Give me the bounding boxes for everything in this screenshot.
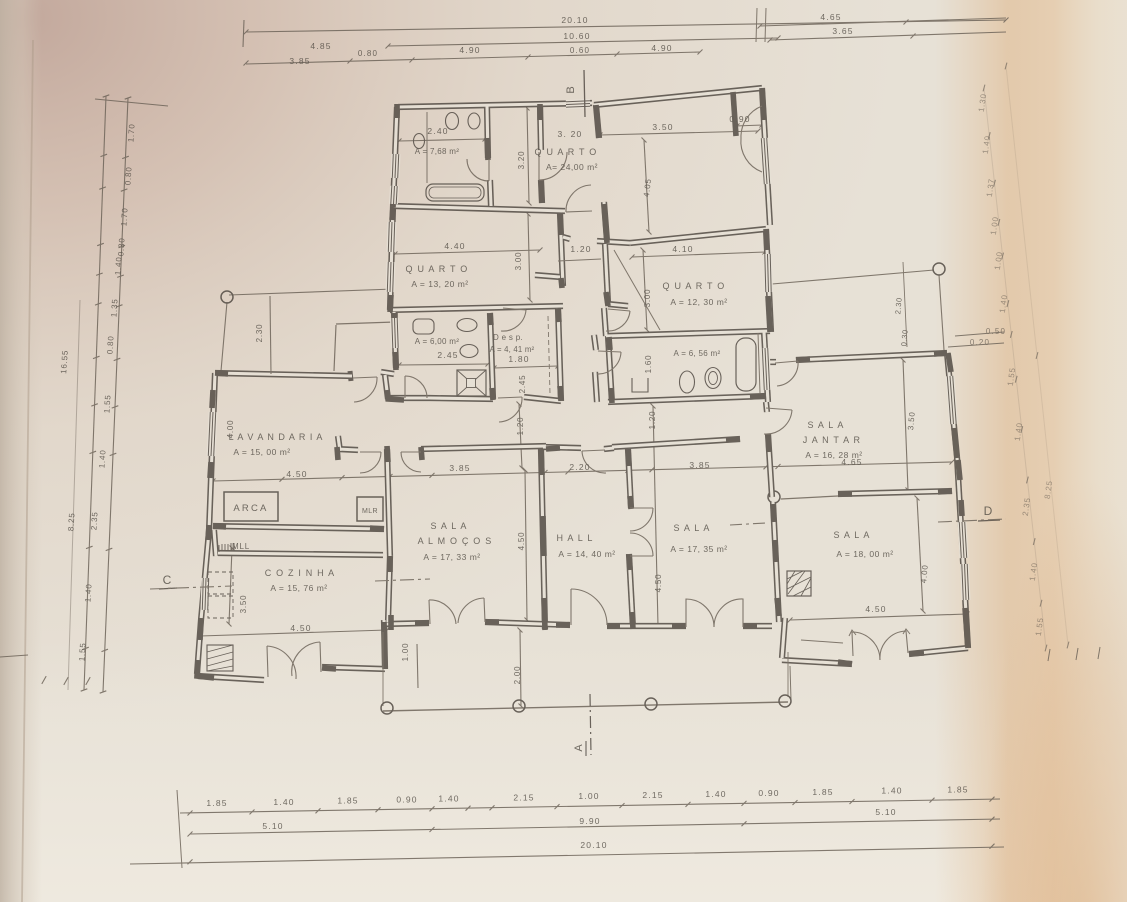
svg-text:3.65: 3.65 <box>832 26 853 36</box>
svg-text:3.85: 3.85 <box>289 56 310 66</box>
svg-text:1.40: 1.40 <box>113 256 123 275</box>
svg-text:1.70: 1.70 <box>126 123 136 142</box>
svg-text:2.00: 2.00 <box>513 666 522 685</box>
svg-text:A = 7,68 m²: A = 7,68 m² <box>415 147 459 156</box>
svg-text:A = 6,00 m²: A = 6,00 m² <box>415 337 459 346</box>
svg-text:MLR: MLR <box>362 508 378 515</box>
svg-text:1.00: 1.00 <box>401 643 410 662</box>
svg-text:0.80: 0.80 <box>123 166 133 185</box>
svg-text:A = 17, 35 m²: A = 17, 35 m² <box>670 544 727 554</box>
svg-text:S A L A: S A L A <box>833 530 870 540</box>
svg-text:2.15: 2.15 <box>513 792 534 802</box>
svg-text:1.70: 1.70 <box>119 207 129 226</box>
svg-text:2.45: 2.45 <box>437 350 458 360</box>
svg-text:4.50: 4.50 <box>654 574 663 593</box>
svg-text:S A L A: S A L A <box>673 523 710 533</box>
svg-text:3.50: 3.50 <box>906 411 917 430</box>
svg-text:4.00: 4.00 <box>226 420 235 439</box>
svg-text:A = 14, 40 m²: A = 14, 40 m² <box>558 549 615 559</box>
svg-text:S A L A: S A L A <box>807 420 844 430</box>
svg-text:1.85: 1.85 <box>206 798 227 808</box>
svg-text:0.90: 0.90 <box>758 788 779 798</box>
svg-text:1.00: 1.00 <box>578 791 599 801</box>
svg-text:3. 20: 3. 20 <box>558 129 583 139</box>
svg-text:1.85: 1.85 <box>812 787 833 797</box>
svg-text:4.40: 4.40 <box>444 241 465 251</box>
svg-text:4.50: 4.50 <box>286 469 307 479</box>
svg-text:9.90: 9.90 <box>579 816 600 826</box>
svg-text:2.40: 2.40 <box>427 126 448 136</box>
svg-text:1.85: 1.85 <box>947 784 968 794</box>
svg-text:20.10: 20.10 <box>580 840 607 850</box>
svg-text:A = 6, 56 m²: A = 6, 56 m² <box>674 349 721 358</box>
svg-text:4.65: 4.65 <box>841 457 862 467</box>
svg-text:4.50: 4.50 <box>865 604 886 614</box>
svg-text:J A N T A R: J A N T A R <box>803 435 861 445</box>
svg-text:L A V A N D A R I A: L A V A N D A R I A <box>229 432 324 442</box>
svg-text:Q U A R T O: Q U A R T O <box>535 147 598 157</box>
svg-text:Q U A R T O: Q U A R T O <box>663 281 726 291</box>
svg-text:1.60: 1.60 <box>644 355 653 374</box>
svg-text:3.50: 3.50 <box>652 122 673 132</box>
svg-text:1.85: 1.85 <box>337 796 358 806</box>
svg-text:4.65: 4.65 <box>820 12 841 22</box>
svg-text:0.80: 0.80 <box>358 49 378 58</box>
svg-text:ARCA: ARCA <box>233 503 268 514</box>
svg-text:4.85: 4.85 <box>310 41 331 51</box>
svg-text:4.10: 4.10 <box>672 244 693 254</box>
svg-text:B: B <box>565 86 577 93</box>
svg-text:16.55: 16.55 <box>59 350 70 375</box>
svg-text:A = 12, 30 m²: A = 12, 30 m² <box>670 297 727 307</box>
svg-text:2.30: 2.30 <box>893 297 903 315</box>
svg-text:0.90: 0.90 <box>396 794 417 804</box>
svg-text:1.40: 1.40 <box>438 794 459 804</box>
svg-text:3.85: 3.85 <box>689 460 710 470</box>
svg-text:1.55: 1.55 <box>102 394 112 413</box>
svg-text:Q U A R T O: Q U A R T O <box>406 264 469 274</box>
svg-text:S A L A: S A L A <box>430 521 467 531</box>
svg-text:0.50: 0.50 <box>986 327 1006 336</box>
svg-text:2.20: 2.20 <box>569 462 590 472</box>
svg-text:1.80: 1.80 <box>508 354 529 364</box>
svg-text:3.85: 3.85 <box>449 463 470 473</box>
svg-text:4.90: 4.90 <box>459 45 480 55</box>
svg-text:1.40: 1.40 <box>83 583 93 602</box>
svg-text:1.40: 1.40 <box>881 786 902 796</box>
svg-text:4.50: 4.50 <box>290 623 311 633</box>
svg-text:1.20: 1.20 <box>648 411 657 430</box>
svg-text:1.55: 1.55 <box>77 642 87 661</box>
svg-text:4.90: 4.90 <box>651 43 672 53</box>
svg-text:C O Z I N H A: C O Z I N H A <box>265 568 336 578</box>
svg-text:3.50: 3.50 <box>239 595 248 614</box>
svg-text:0.90: 0.90 <box>729 114 750 124</box>
svg-text:4.50: 4.50 <box>517 532 526 551</box>
svg-text:C: C <box>163 573 172 587</box>
svg-text:20.10: 20.10 <box>561 15 588 25</box>
svg-text:A = 17, 33 m²: A = 17, 33 m² <box>423 552 480 562</box>
svg-text:MLL: MLL <box>232 542 250 551</box>
svg-text:A = 15, 76 m²: A = 15, 76 m² <box>270 583 327 593</box>
svg-text:2.15: 2.15 <box>642 790 663 800</box>
svg-text:A = 18, 00 m²: A = 18, 00 m² <box>836 549 893 559</box>
svg-text:A L M O Ç O S: A L M O Ç O S <box>418 536 493 546</box>
svg-text:1.20: 1.20 <box>516 417 525 436</box>
svg-text:A = 4, 41 m²: A = 4, 41 m² <box>490 345 535 354</box>
svg-text:H A L L: H A L L <box>556 533 593 543</box>
svg-text:5.10: 5.10 <box>875 807 896 817</box>
svg-text:2.35: 2.35 <box>89 511 99 530</box>
svg-text:1.40: 1.40 <box>273 797 294 807</box>
svg-text:3.00: 3.00 <box>643 289 652 308</box>
svg-text:A= 24,00 m²: A= 24,00 m² <box>546 162 598 172</box>
svg-text:3.20: 3.20 <box>517 151 526 170</box>
svg-text:A = 15, 00 m²: A = 15, 00 m² <box>233 447 290 457</box>
svg-text:1.40: 1.40 <box>97 449 107 468</box>
svg-text:A: A <box>573 744 585 752</box>
svg-text:0.30: 0.30 <box>116 237 126 256</box>
svg-text:5.10: 5.10 <box>262 821 283 831</box>
svg-text:0.30: 0.30 <box>899 329 909 347</box>
svg-text:0.80: 0.80 <box>105 335 115 354</box>
svg-text:4.00: 4.00 <box>919 564 930 583</box>
svg-text:2.45: 2.45 <box>518 375 527 394</box>
svg-text:8.25: 8.25 <box>66 512 76 531</box>
svg-text:10.60: 10.60 <box>563 31 590 41</box>
svg-text:1.35: 1.35 <box>109 298 119 317</box>
svg-text:D e s p.: D e s p. <box>493 333 523 342</box>
svg-text:1.40: 1.40 <box>705 789 726 799</box>
svg-text:2.30: 2.30 <box>255 324 264 343</box>
svg-text:D: D <box>984 504 993 518</box>
svg-text:0.60: 0.60 <box>570 46 590 55</box>
svg-text:1.20: 1.20 <box>570 244 591 254</box>
svg-text:3.00: 3.00 <box>514 252 523 271</box>
svg-text:A = 13, 20 m²: A = 13, 20 m² <box>411 279 468 289</box>
